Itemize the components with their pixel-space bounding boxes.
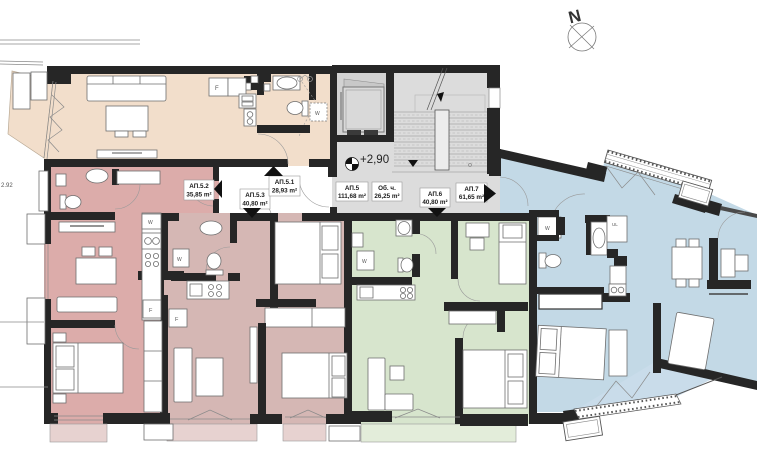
svg-text:АП.7: АП.7	[464, 186, 479, 193]
svg-text:40,80 m²: 40,80 m²	[422, 199, 447, 206]
svg-text:W: W	[362, 259, 367, 265]
svg-text:2.92: 2.92	[1, 183, 13, 189]
svg-text:26,25 m²: 26,25 m²	[374, 193, 399, 200]
svg-text:28,93 m²: 28,93 m²	[272, 188, 297, 195]
svg-text:40,80 m²: 40,80 m²	[242, 201, 267, 208]
svg-text:+2,90: +2,90	[360, 154, 389, 166]
svg-text:61,65 m²: 61,65 m²	[459, 194, 484, 201]
svg-text:UL: UL	[612, 222, 618, 227]
svg-text:111,68 m²: 111,68 m²	[338, 193, 366, 200]
svg-text:АП.6: АП.6	[428, 191, 443, 198]
svg-text:АП.5.2: АП.5.2	[189, 183, 209, 190]
svg-text:F: F	[215, 86, 219, 92]
svg-text:35,85 m²: 35,85 m²	[186, 192, 211, 199]
svg-text:W: W	[545, 226, 550, 232]
svg-text:АП.5.3: АП.5.3	[245, 192, 265, 199]
svg-text:АП.5: АП.5	[345, 185, 360, 192]
svg-text:W: W	[148, 220, 153, 226]
svg-text:АП.5.1: АП.5.1	[275, 179, 295, 186]
svg-text:W: W	[315, 111, 320, 117]
svg-text:W: W	[177, 257, 182, 263]
svg-text:Об. ч.: Об. ч.	[378, 184, 396, 192]
